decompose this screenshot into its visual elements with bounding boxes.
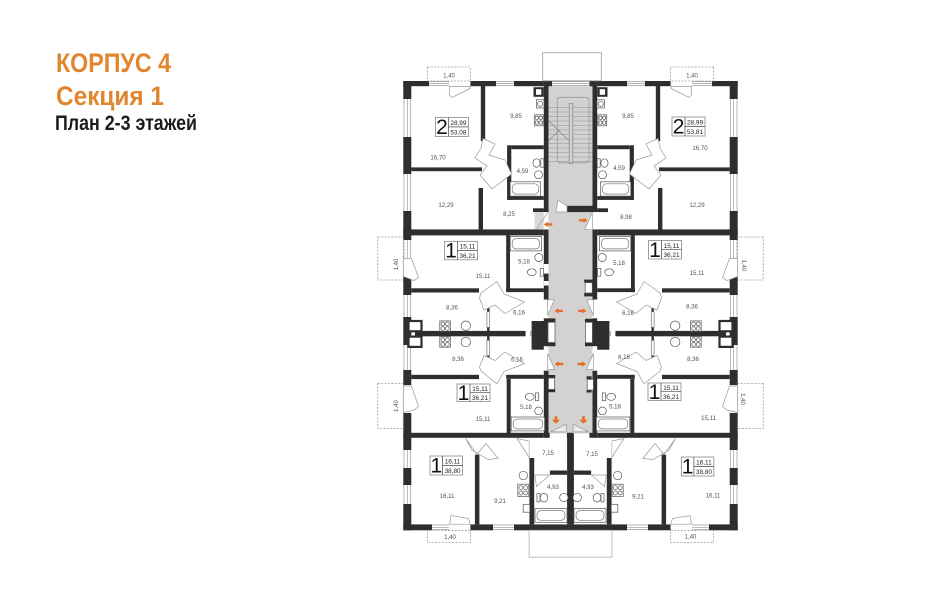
svg-text:8,36: 8,36 xyxy=(446,305,458,312)
svg-text:15,11: 15,11 xyxy=(472,386,488,393)
svg-text:16,11: 16,11 xyxy=(706,493,721,500)
svg-text:8,25: 8,25 xyxy=(503,211,515,218)
svg-text:15,11: 15,11 xyxy=(476,273,491,280)
svg-text:1: 1 xyxy=(445,240,457,263)
svg-text:1: 1 xyxy=(649,239,661,262)
svg-text:План 2-3 этажей: План 2-3 этажей xyxy=(55,112,197,135)
svg-text:16,70: 16,70 xyxy=(430,155,446,162)
svg-text:15,11: 15,11 xyxy=(664,243,680,250)
svg-text:1,40: 1,40 xyxy=(443,73,455,80)
svg-text:16,11: 16,11 xyxy=(445,459,461,466)
svg-text:36,21: 36,21 xyxy=(472,395,488,402)
svg-text:1,40: 1,40 xyxy=(444,534,456,541)
svg-text:36,21: 36,21 xyxy=(664,252,680,259)
svg-text:6,16: 6,16 xyxy=(513,310,525,317)
svg-text:7,15: 7,15 xyxy=(542,450,554,457)
svg-text:4,59: 4,59 xyxy=(613,165,625,172)
svg-text:28,99: 28,99 xyxy=(450,120,466,127)
svg-text:15,11: 15,11 xyxy=(690,270,705,277)
svg-text:15,11: 15,11 xyxy=(460,244,476,251)
svg-text:16,70: 16,70 xyxy=(692,145,708,152)
svg-text:15,11: 15,11 xyxy=(476,416,491,423)
svg-text:1,40: 1,40 xyxy=(685,534,697,541)
svg-text:53,81: 53,81 xyxy=(687,129,703,136)
svg-text:5,18: 5,18 xyxy=(613,260,625,267)
svg-text:1: 1 xyxy=(458,382,470,405)
svg-text:Секция 1: Секция 1 xyxy=(56,81,164,111)
svg-text:5,18: 5,18 xyxy=(518,259,530,266)
svg-text:1,40: 1,40 xyxy=(393,258,400,270)
svg-text:6,16: 6,16 xyxy=(618,354,630,361)
svg-text:1,40: 1,40 xyxy=(393,399,400,411)
svg-text:16,11: 16,11 xyxy=(440,493,455,500)
svg-text:2: 2 xyxy=(673,116,685,139)
svg-text:9,21: 9,21 xyxy=(632,494,644,501)
svg-text:5,18: 5,18 xyxy=(609,404,621,411)
svg-text:6,16: 6,16 xyxy=(622,310,634,317)
svg-text:8,36: 8,36 xyxy=(687,356,699,363)
svg-text:4,93: 4,93 xyxy=(582,484,594,491)
svg-text:1,40: 1,40 xyxy=(739,393,746,405)
svg-text:36,21: 36,21 xyxy=(460,253,476,260)
svg-text:8,98: 8,98 xyxy=(620,214,632,221)
svg-text:1,40: 1,40 xyxy=(740,259,747,271)
svg-text:15,11: 15,11 xyxy=(701,415,716,422)
svg-text:36,21: 36,21 xyxy=(663,394,679,401)
svg-text:9,85: 9,85 xyxy=(510,113,522,120)
svg-text:16,11: 16,11 xyxy=(696,460,712,467)
svg-text:4,59: 4,59 xyxy=(517,168,529,175)
svg-text:28,99: 28,99 xyxy=(687,120,703,127)
svg-text:7,15: 7,15 xyxy=(586,451,598,458)
svg-text:1,40: 1,40 xyxy=(686,73,698,80)
svg-text:КОРПУС 4: КОРПУС 4 xyxy=(56,48,171,78)
svg-text:9,85: 9,85 xyxy=(622,113,634,120)
svg-text:12,29: 12,29 xyxy=(689,202,705,209)
svg-text:38,80: 38,80 xyxy=(696,469,712,476)
svg-text:53,08: 53,08 xyxy=(450,129,466,136)
svg-text:5,18: 5,18 xyxy=(520,404,532,411)
svg-text:9,21: 9,21 xyxy=(494,498,506,505)
svg-text:15,11: 15,11 xyxy=(663,385,679,392)
svg-text:8,36: 8,36 xyxy=(686,304,698,311)
svg-text:1: 1 xyxy=(682,456,694,479)
svg-text:1: 1 xyxy=(649,381,661,404)
svg-text:12,29: 12,29 xyxy=(438,202,454,209)
svg-text:38,80: 38,80 xyxy=(445,468,461,475)
svg-text:2: 2 xyxy=(436,116,448,139)
svg-text:4,93: 4,93 xyxy=(547,484,559,491)
svg-text:1: 1 xyxy=(430,455,442,478)
svg-text:8,36: 8,36 xyxy=(452,356,464,363)
svg-text:6,16: 6,16 xyxy=(511,357,523,364)
